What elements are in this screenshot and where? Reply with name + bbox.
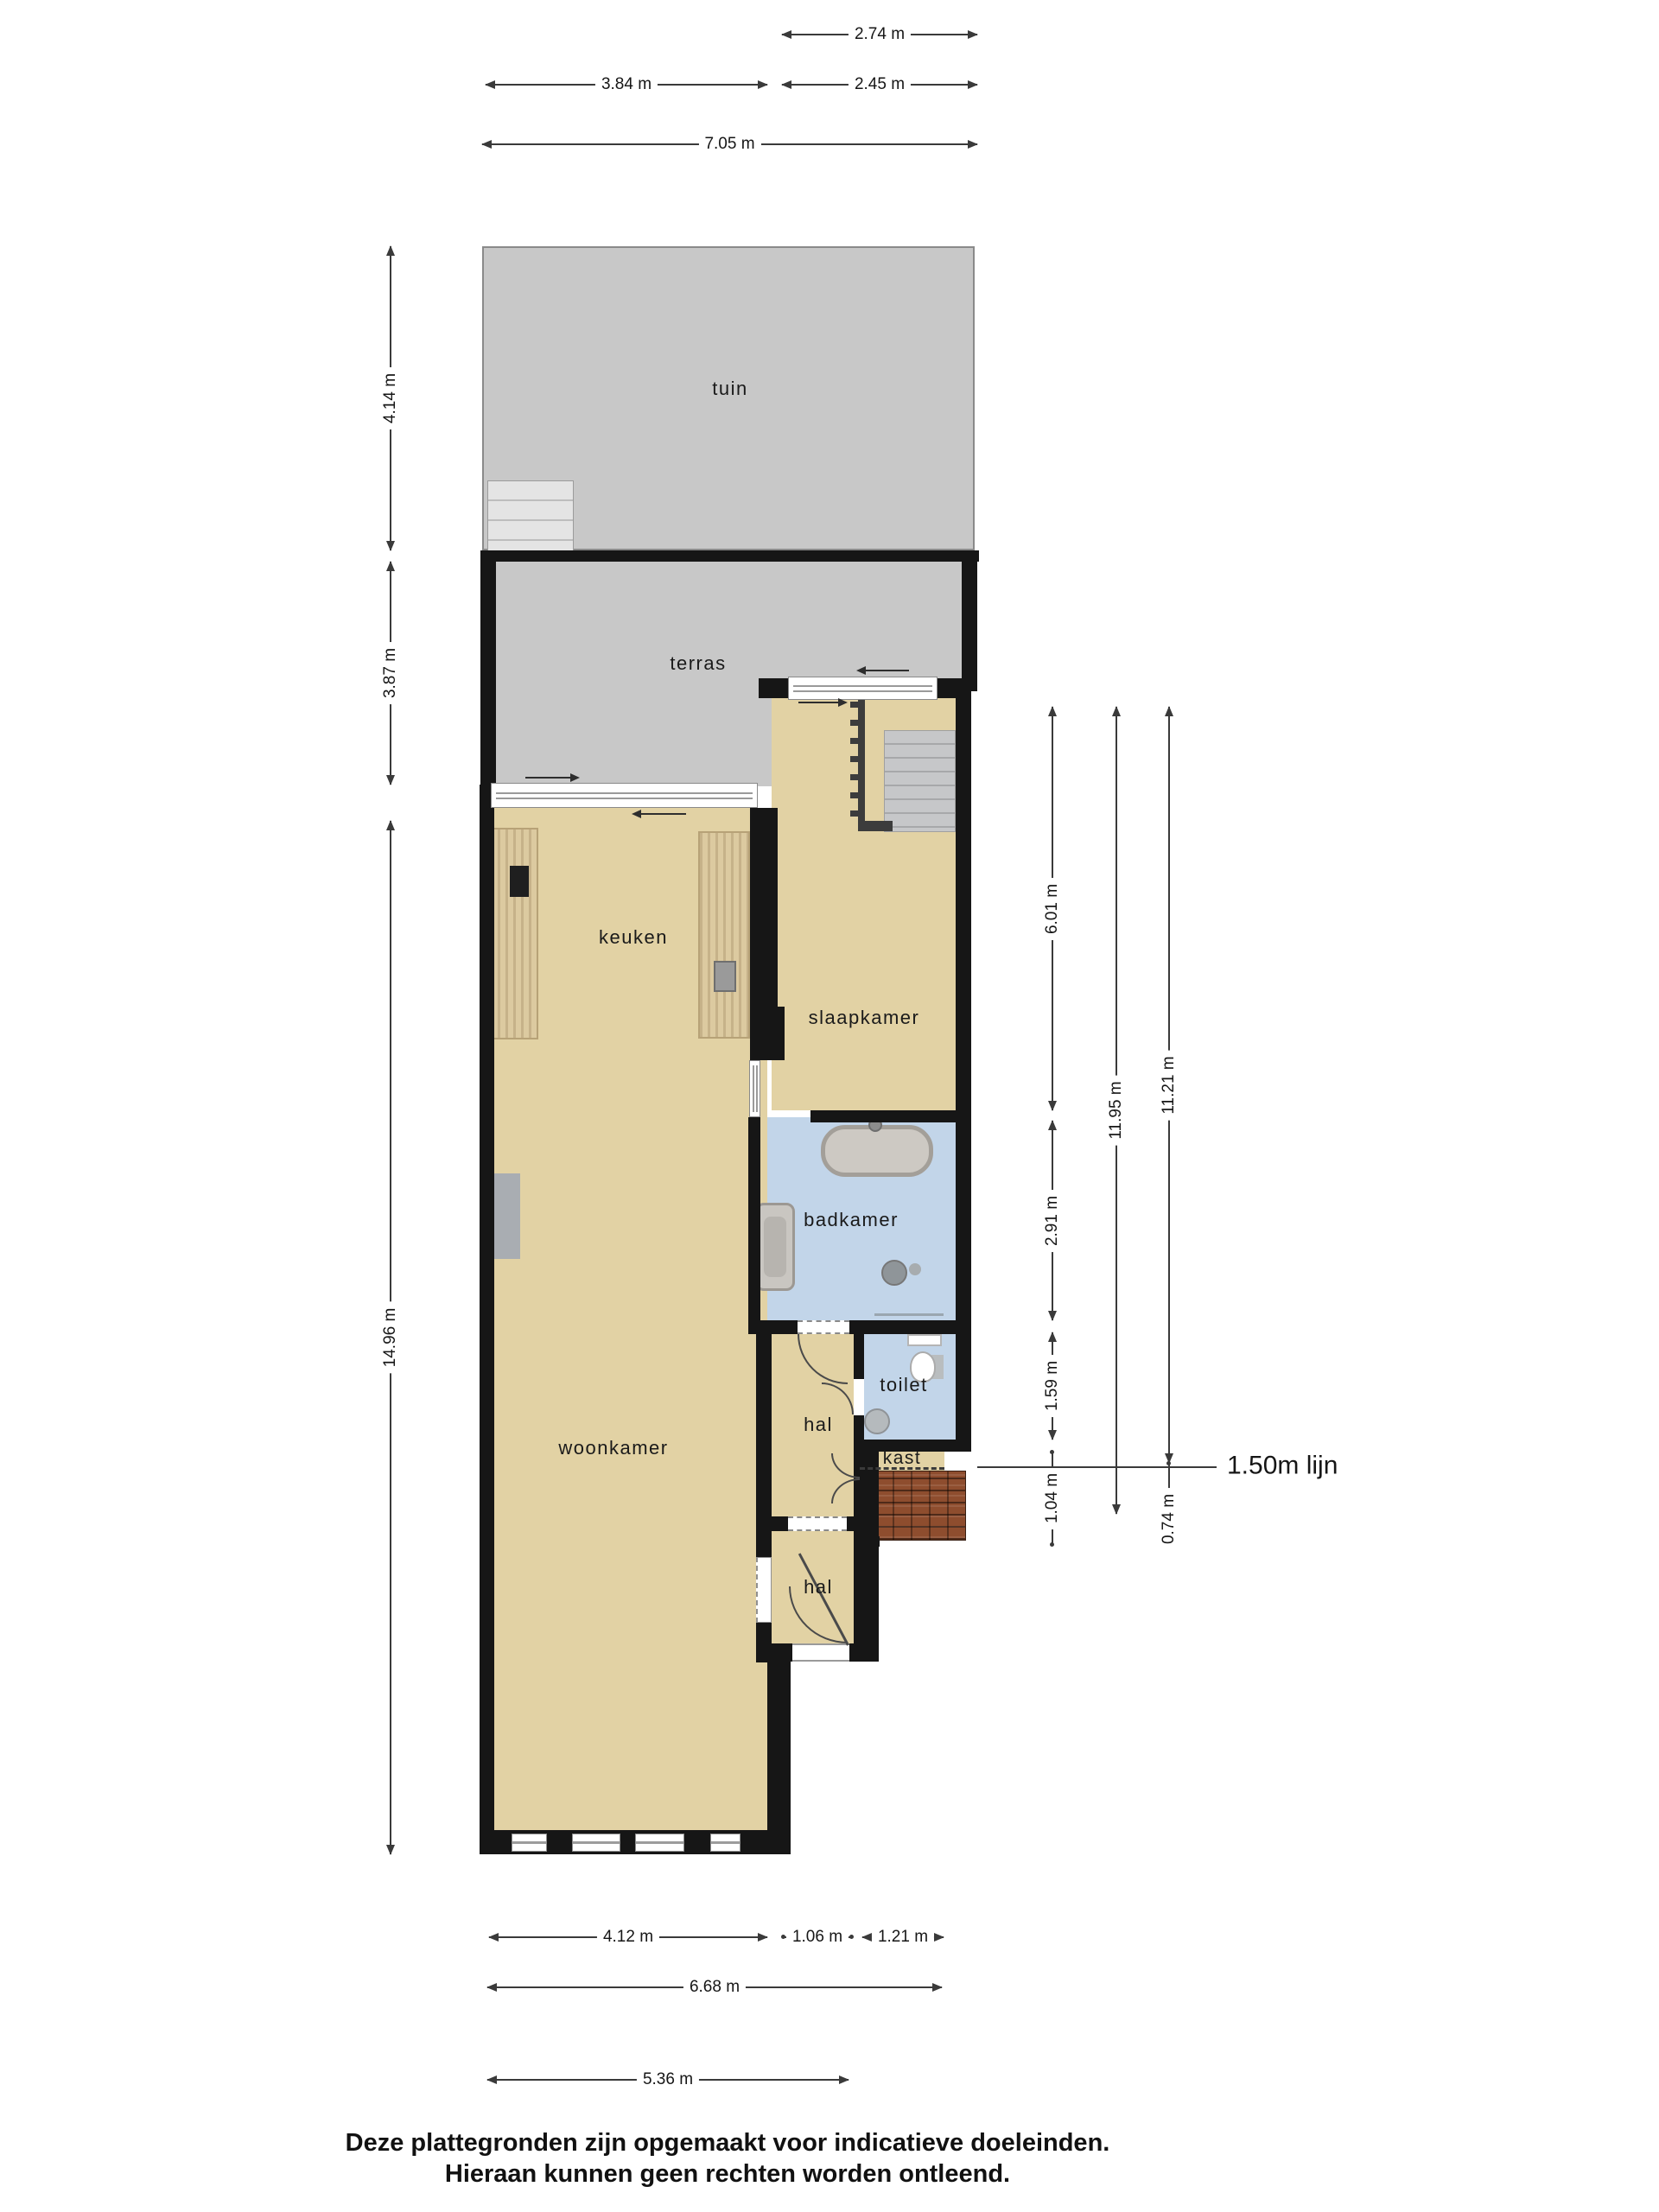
- arrow-right-icon: [932, 1983, 943, 1992]
- bathroom-plant: [881, 1260, 907, 1286]
- terrace-left-wall: [480, 562, 496, 786]
- arrow-up-icon: [1048, 1120, 1057, 1130]
- arrow-up-icon: [386, 820, 395, 830]
- room-label-badkamer: badkamer: [804, 1209, 899, 1231]
- stair-rail: [858, 698, 865, 829]
- arrow-up-icon: [386, 561, 395, 571]
- arrow-right-icon: [968, 30, 978, 39]
- slide-arrow-line: [525, 777, 570, 779]
- dimension-right-601: 6.01 m: [1052, 707, 1053, 1110]
- room-label-slaapkamer: slaapkamer: [809, 1007, 920, 1029]
- garden-fence-wall: [480, 550, 979, 562]
- arrow-down-icon: [1112, 1504, 1121, 1515]
- livingroom-cabinet: [490, 1173, 520, 1259]
- kitchen-sliding-door: [491, 783, 758, 808]
- sliding-rail: [793, 685, 932, 692]
- dimension-label: 11.95 m: [1107, 1075, 1126, 1145]
- dimension-label: 2.91 m: [1043, 1189, 1062, 1251]
- dimension-label: 1.06 m: [786, 1928, 849, 1947]
- dimension-label: 5.36 m: [637, 2070, 699, 2089]
- arrow-down-icon: [386, 541, 395, 551]
- bathroom-sink-basin: [764, 1217, 786, 1277]
- arrow-right-icon: [839, 2075, 849, 2084]
- bedroom-sliding-door: [788, 677, 938, 700]
- dimension-label: 3.84 m: [595, 75, 658, 94]
- terrace-right-wall: [962, 550, 977, 691]
- dimension-label: 6.01 m: [1043, 877, 1062, 939]
- dimension-bottom-121: 1.21 m: [862, 1936, 944, 1938]
- arrow-up-icon: [1112, 706, 1121, 716]
- front-door-opening: [792, 1643, 849, 1662]
- disclaimer-line-1: Deze plattegronden zijn opgemaakt voor i…: [346, 2127, 1110, 2158]
- arrow-down-icon: [1048, 1101, 1057, 1111]
- bathroom-door-opening: [798, 1320, 849, 1334]
- sliding-rail: [753, 1065, 758, 1112]
- dimension-right-291: 2.91 m: [1052, 1121, 1053, 1320]
- bathtub: [821, 1125, 933, 1177]
- arrow-right-icon: [758, 1933, 768, 1942]
- livingroom-right-wall: [767, 1662, 791, 1854]
- slide-arrow-left-icon: [632, 810, 641, 818]
- hall-window: [756, 1557, 772, 1623]
- bathroom-left-wall: [748, 1117, 760, 1333]
- stair-rail-ticks: [850, 702, 858, 823]
- dimension-label: 6.68 m: [683, 1978, 746, 1997]
- dot-marker: [849, 1935, 854, 1939]
- dot-marker: [781, 1935, 785, 1939]
- line-150cm-label: 1.50m lijn: [1227, 1451, 1338, 1480]
- arrow-left-icon: [481, 140, 492, 149]
- dimension-bottom-536: 5.36 m: [487, 2079, 849, 2081]
- sliding-rail: [496, 792, 753, 799]
- arrow-left-icon: [486, 2075, 497, 2084]
- dimension-right-1195: 11.95 m: [1116, 707, 1117, 1514]
- room-label-hal-upper: hal: [804, 1414, 833, 1436]
- arrow-left-icon: [861, 1933, 872, 1942]
- room-label-kast: kast: [883, 1448, 922, 1469]
- terrace-area-upper: [482, 562, 977, 678]
- arrow-up-icon: [1048, 706, 1057, 716]
- slide-arrow-right-icon: [838, 698, 848, 707]
- toilet-sink: [864, 1408, 890, 1434]
- arrow-right-icon: [758, 80, 768, 89]
- window: [710, 1834, 741, 1852]
- dimension-bottom-668: 6.68 m: [487, 1986, 942, 1988]
- bathroom-bottom-wall: [748, 1320, 956, 1334]
- brick-stoop-stub: [854, 1536, 880, 1547]
- stove-appliance: [714, 961, 736, 992]
- dimension-left-414: 4.14 m: [390, 246, 391, 550]
- dimension-label: 0.74 m: [1160, 1488, 1179, 1550]
- dimension-top-274: 2.74 m: [782, 34, 977, 35]
- dot-marker: [1166, 1461, 1171, 1465]
- dimension-label: 4.14 m: [381, 367, 400, 429]
- dimension-top-705: 7.05 m: [482, 143, 977, 145]
- slide-arrow-right-icon: [570, 773, 580, 782]
- toilet-shelf: [907, 1334, 942, 1346]
- bathroom-top-wall: [810, 1110, 956, 1122]
- arrow-left-icon: [781, 30, 791, 39]
- room-label-woonkamer: woonkamer: [558, 1437, 668, 1459]
- dimension-label: 1.59 m: [1043, 1355, 1062, 1417]
- dimension-right-074: 0.74 m: [1168, 1463, 1170, 1514]
- floorplan-canvas: tuin terras keuken slaapkamer badkamer t…: [0, 0, 1659, 2212]
- hall-passage-opening: [788, 1516, 847, 1531]
- window: [635, 1834, 684, 1852]
- window: [572, 1834, 620, 1852]
- dimension-right-159: 1.59 m: [1052, 1332, 1053, 1440]
- dimension-label: 2.45 m: [849, 75, 911, 94]
- slide-arrow-line: [798, 702, 838, 703]
- dimension-left-387: 3.87 m: [390, 562, 391, 785]
- arrow-down-icon: [386, 775, 395, 785]
- arrow-right-icon: [968, 140, 978, 149]
- arrow-left-icon: [485, 80, 495, 89]
- dimension-label: 1.04 m: [1043, 1467, 1062, 1529]
- arrow-down-icon: [1048, 1311, 1057, 1321]
- left-outer-wall: [480, 785, 494, 1854]
- dimension-label: 3.87 m: [381, 642, 400, 704]
- dimension-label: 7.05 m: [698, 135, 760, 154]
- arrow-left-icon: [781, 80, 791, 89]
- corridor-sliding-door: [749, 1060, 760, 1117]
- dot-marker: [1050, 1542, 1054, 1547]
- kitchen-bedroom-wall-upper: [750, 808, 778, 1007]
- shower-screen-line: [874, 1313, 944, 1316]
- disclaimer-text: Deze plattegronden zijn opgemaakt voor i…: [346, 2127, 1110, 2190]
- arrow-down-icon: [1048, 1430, 1057, 1440]
- kitchen-counter-left: [488, 828, 538, 1039]
- dimension-top-245: 2.45 m: [782, 84, 977, 86]
- toilet-door-opening: [854, 1379, 864, 1415]
- garden-steps: [487, 480, 574, 560]
- window: [512, 1834, 547, 1852]
- room-label-toilet: toilet: [880, 1374, 927, 1396]
- arrow-right-icon: [934, 1933, 944, 1942]
- line-150cm: [977, 1466, 1217, 1468]
- dimension-right-1121: 11.21 m: [1168, 707, 1170, 1463]
- arrow-up-icon: [1048, 1332, 1057, 1342]
- arrow-up-icon: [1165, 706, 1173, 716]
- terrace-area-lower: [482, 678, 773, 786]
- dimension-bottom-412: 4.12 m: [489, 1936, 767, 1938]
- dot-marker: [1050, 1450, 1054, 1454]
- dimension-label: 2.74 m: [849, 25, 911, 44]
- arrow-left-icon: [488, 1933, 499, 1942]
- bathroom-plant-small: [909, 1263, 921, 1275]
- kitchen-bedroom-wall-lower: [750, 1007, 785, 1060]
- dimension-bottom-106: 1.06 m: [783, 1936, 852, 1938]
- arrow-down-icon: [386, 1845, 395, 1855]
- arrow-up-icon: [386, 245, 395, 256]
- kitchen-counter-right: [698, 831, 750, 1039]
- room-label-terras: terras: [670, 652, 726, 675]
- dimension-label: 4.12 m: [597, 1928, 659, 1947]
- oven-appliance: [510, 866, 529, 897]
- slide-arrow-line: [866, 670, 909, 671]
- dimension-label: 14.96 m: [381, 1302, 400, 1374]
- slide-arrow-left-icon: [856, 666, 866, 675]
- room-label-keuken: keuken: [599, 926, 668, 949]
- slide-arrow-line: [641, 813, 686, 815]
- stairs: [884, 730, 956, 832]
- room-label-tuin: tuin: [712, 378, 747, 400]
- right-outer-wall: [956, 678, 971, 1452]
- dimension-label: 1.21 m: [872, 1928, 934, 1947]
- dimension-left-1496: 14.96 m: [390, 821, 391, 1854]
- dimension-label: 11.21 m: [1160, 1050, 1179, 1120]
- stair-rail-foot: [858, 821, 893, 831]
- bedroom-top-wall-left-stub: [759, 678, 788, 698]
- arrow-right-icon: [968, 80, 978, 89]
- dimension-top-384: 3.84 m: [486, 84, 767, 86]
- room-label-hal-lower: hal: [804, 1576, 833, 1599]
- disclaimer-line-2: Hieraan kunnen geen rechten worden ontle…: [346, 2158, 1110, 2190]
- arrow-left-icon: [486, 1983, 497, 1992]
